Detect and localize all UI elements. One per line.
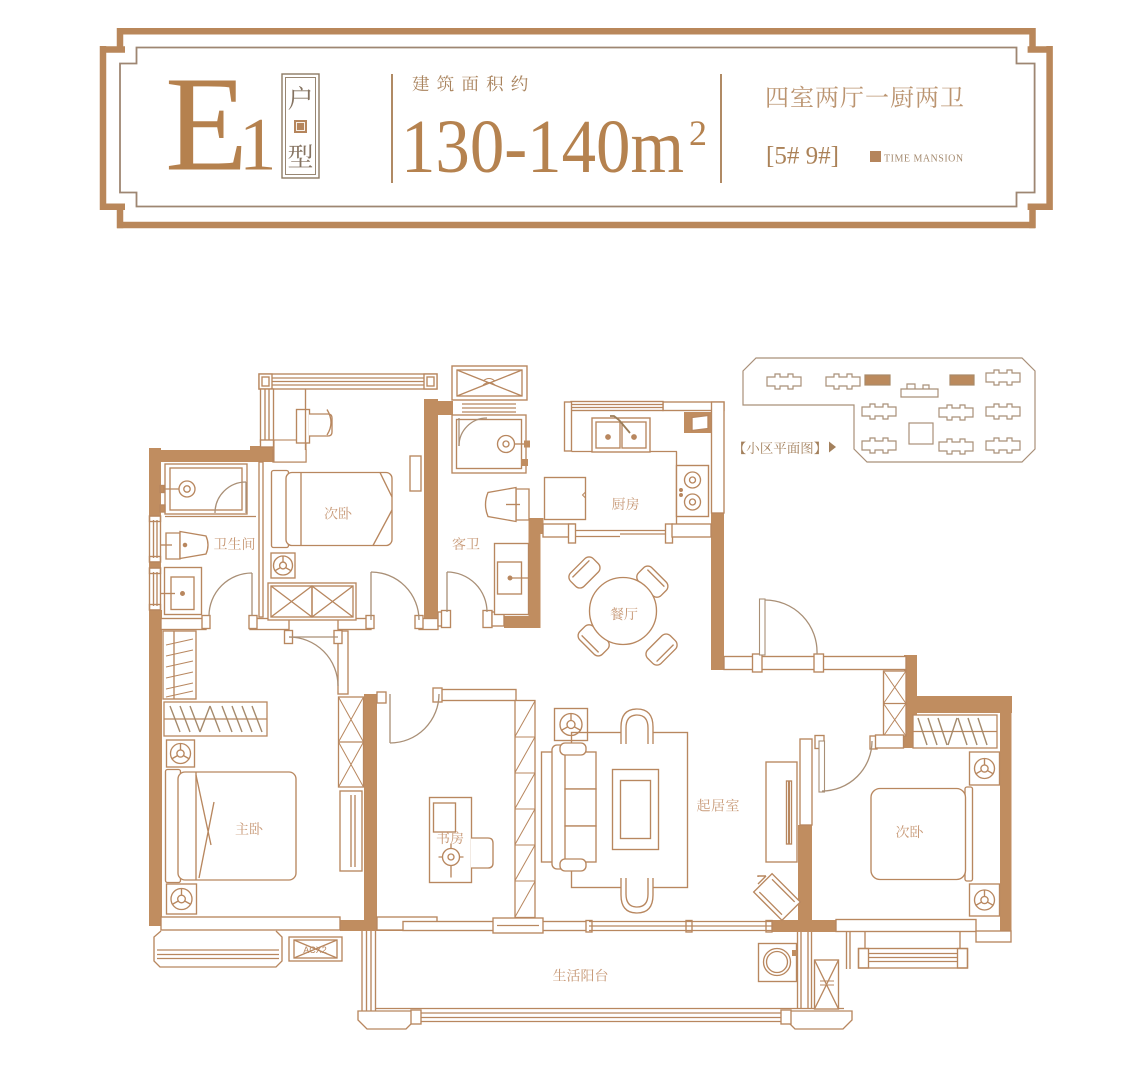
svg-text:ACX2: ACX2: [303, 945, 327, 955]
svg-text:130-140m: 130-140m: [401, 105, 684, 189]
svg-text:1: 1: [239, 104, 277, 187]
svg-text:2: 2: [689, 113, 707, 153]
svg-text:E: E: [165, 50, 248, 200]
svg-text:[5# 9#]: [5# 9#]: [766, 143, 839, 170]
svg-text:TIME MANSION: TIME MANSION: [884, 154, 964, 165]
